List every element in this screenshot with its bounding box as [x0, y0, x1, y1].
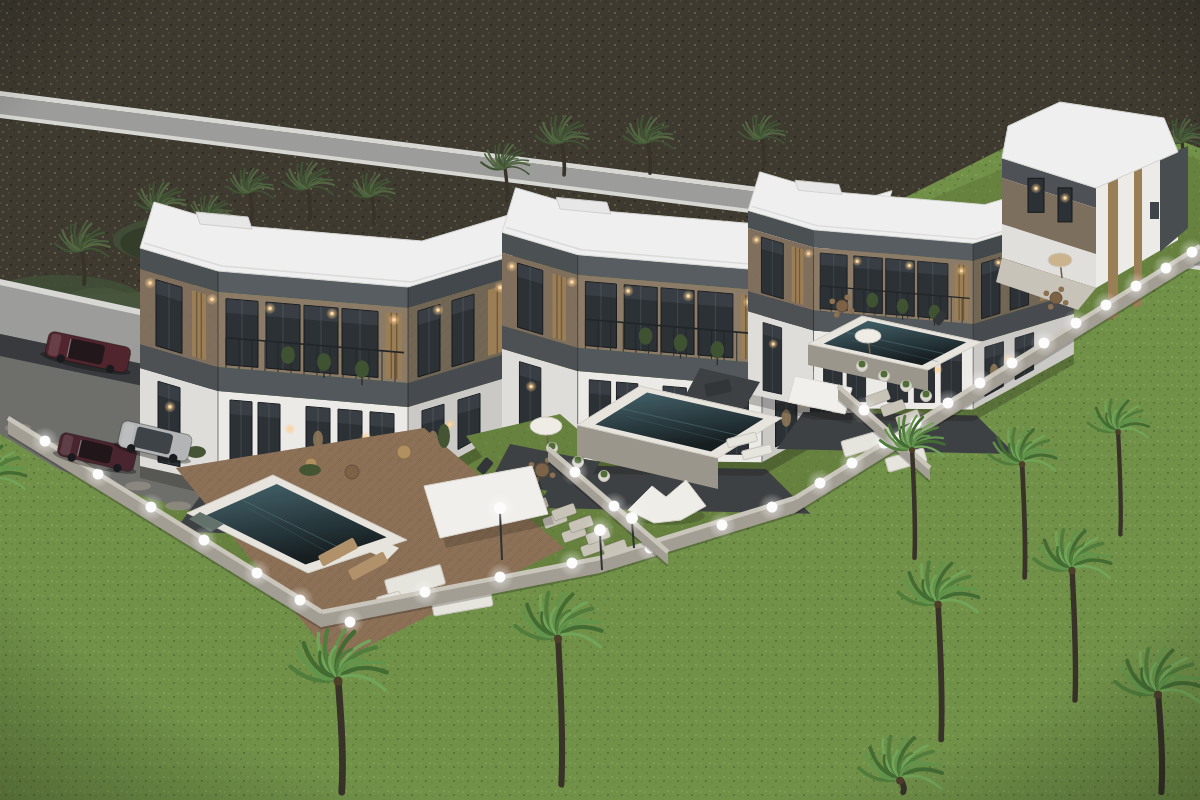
vignette-overlay — [0, 0, 1200, 800]
render-scene — [0, 0, 1200, 800]
villa-development-render — [0, 0, 1200, 800]
scene-root — [0, 0, 1200, 800]
